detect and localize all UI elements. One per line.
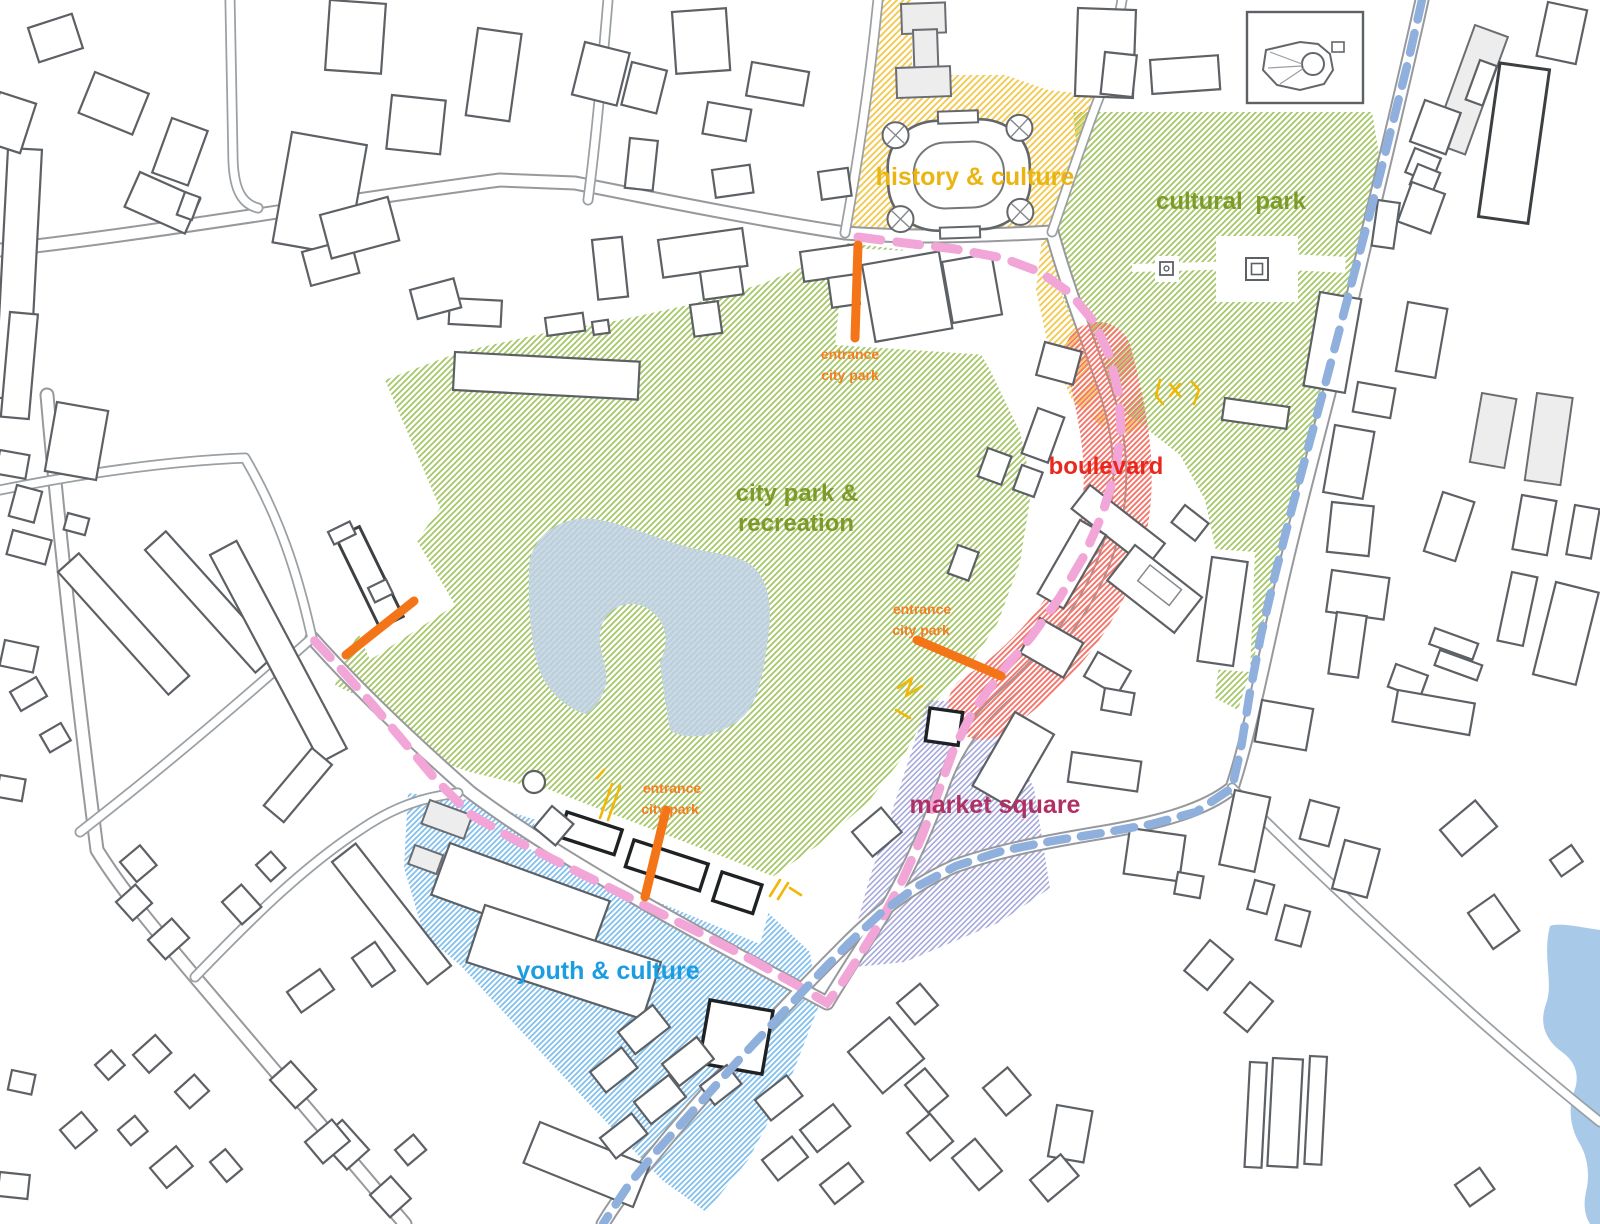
masterplan-page: history & culture cultural park city par… xyxy=(0,0,1600,1224)
svg-text:entrance: entrance xyxy=(821,346,880,362)
museum-building xyxy=(1247,12,1363,103)
zone-label-history-culture: history & culture xyxy=(876,163,1075,191)
zone-label-city-park-line1: city park & xyxy=(736,480,859,507)
svg-text:entrance: entrance xyxy=(893,601,952,617)
svg-text:city park: city park xyxy=(641,801,699,817)
masterplan-map: history & culture cultural park city par… xyxy=(0,0,1600,1224)
svg-text:entrance: entrance xyxy=(643,780,702,796)
zone-label-boulevard: boulevard xyxy=(1049,453,1164,480)
entrance-marker-north xyxy=(855,245,858,338)
svg-text:city park: city park xyxy=(821,367,879,383)
zone-label-youth-culture: youth & culture xyxy=(516,957,699,985)
building-cluster-bottom-right xyxy=(1124,790,1583,1206)
zone-label-cultural-park: cultural park xyxy=(1156,188,1307,215)
zone-label-city-park-line2: recreation xyxy=(738,510,854,537)
svg-text:city park: city park xyxy=(892,622,950,638)
river xyxy=(1543,925,1600,1224)
zone-label-market-square: market square xyxy=(910,791,1081,819)
